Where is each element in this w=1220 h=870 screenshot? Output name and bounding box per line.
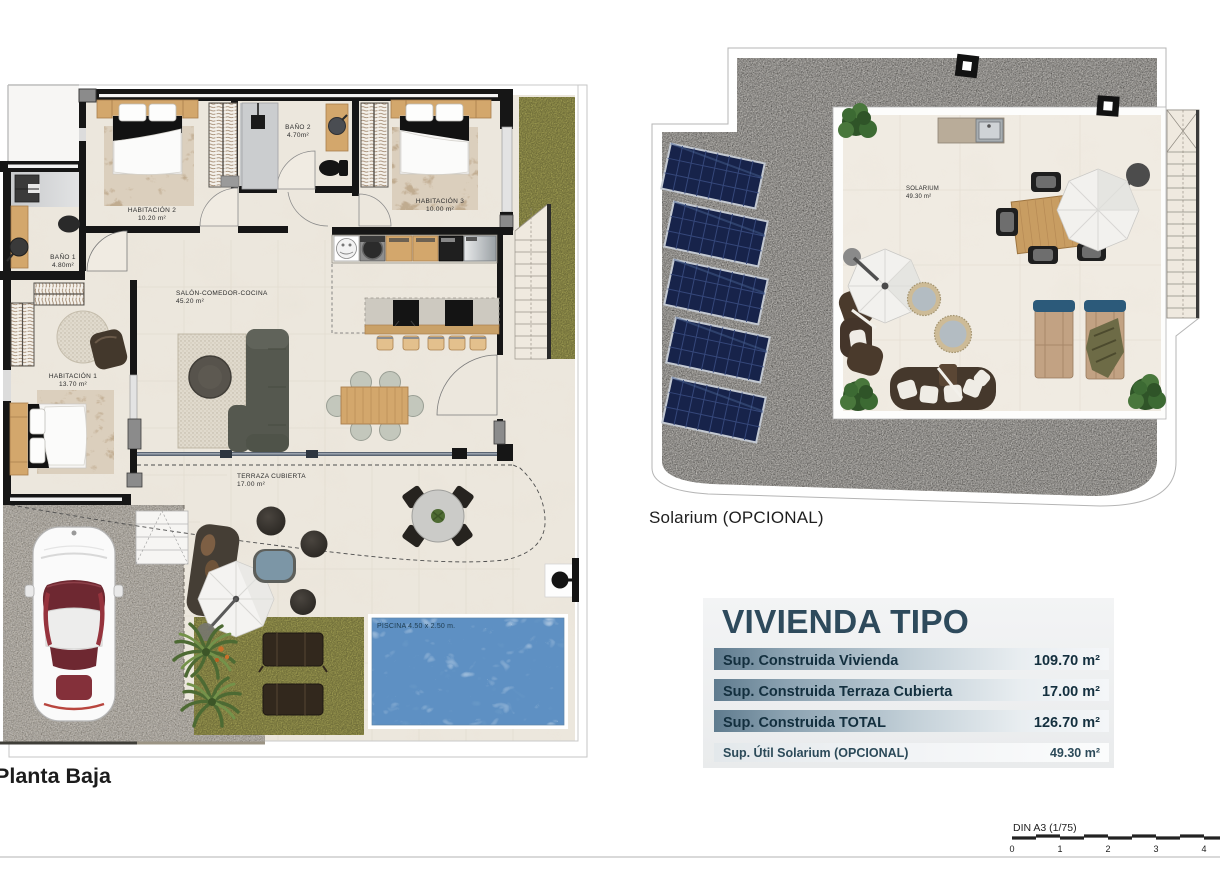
svg-text:49.30 m²: 49.30 m² [906, 194, 931, 200]
svg-text:1: 1 [1057, 844, 1062, 854]
svg-text:13.70 m²: 13.70 m² [59, 381, 88, 388]
svg-text:PISCINA 4.50 x 2.50 m.: PISCINA 4.50 x 2.50 m. [377, 623, 455, 630]
svg-text:10.00 m²: 10.00 m² [426, 206, 455, 213]
svg-text:45.20 m²: 45.20 m² [176, 298, 205, 305]
svg-text:Solarium (OPCIONAL): Solarium (OPCIONAL) [649, 508, 824, 527]
svg-text:4.80m²: 4.80m² [52, 262, 75, 269]
svg-text:SALÓN-COMEDOR-COCINA: SALÓN-COMEDOR-COCINA [176, 288, 268, 297]
svg-text:VIVIENDA TIPO: VIVIENDA TIPO [722, 604, 969, 641]
svg-text:TERRAZA CUBIERTA: TERRAZA CUBIERTA [237, 473, 306, 480]
svg-text:Sup. Construida Vivienda: Sup. Construida Vivienda [723, 653, 899, 669]
svg-text:BAÑO 1: BAÑO 1 [50, 252, 76, 261]
svg-text:HABITACIÓN 2: HABITACIÓN 2 [128, 205, 176, 214]
svg-text:Sup. Construida Terraza Cubier: Sup. Construida Terraza Cubierta [723, 684, 953, 700]
svg-text:HABITACIÓN 1: HABITACIÓN 1 [49, 371, 97, 380]
svg-text:4: 4 [1201, 844, 1206, 854]
svg-text:49.30 m²: 49.30 m² [1050, 746, 1100, 760]
svg-text:109.70 m²: 109.70 m² [1034, 653, 1100, 669]
svg-text:17.00 m²: 17.00 m² [1042, 684, 1100, 700]
svg-text:126.70 m²: 126.70 m² [1034, 715, 1100, 731]
svg-text:10.20 m²: 10.20 m² [138, 215, 167, 222]
svg-text:HABITACIÓN 3: HABITACIÓN 3 [416, 196, 464, 205]
svg-text:Sup. Útil Solarium (OPCIONAL): Sup. Útil Solarium (OPCIONAL) [723, 745, 908, 760]
svg-text:BAÑO 2: BAÑO 2 [285, 122, 311, 131]
svg-text:Planta Baja: Planta Baja [0, 764, 112, 788]
svg-text:SOLARIUM: SOLARIUM [906, 186, 939, 192]
svg-text:3: 3 [1153, 844, 1158, 854]
svg-text:Sup. Construida TOTAL: Sup. Construida TOTAL [723, 715, 886, 731]
svg-text:0: 0 [1009, 844, 1014, 854]
svg-text:2: 2 [1105, 844, 1110, 854]
svg-text:17.00 m²: 17.00 m² [237, 481, 266, 488]
svg-text:DIN A3 (1/75): DIN A3 (1/75) [1013, 822, 1077, 834]
svg-text:4.70m²: 4.70m² [287, 132, 310, 139]
